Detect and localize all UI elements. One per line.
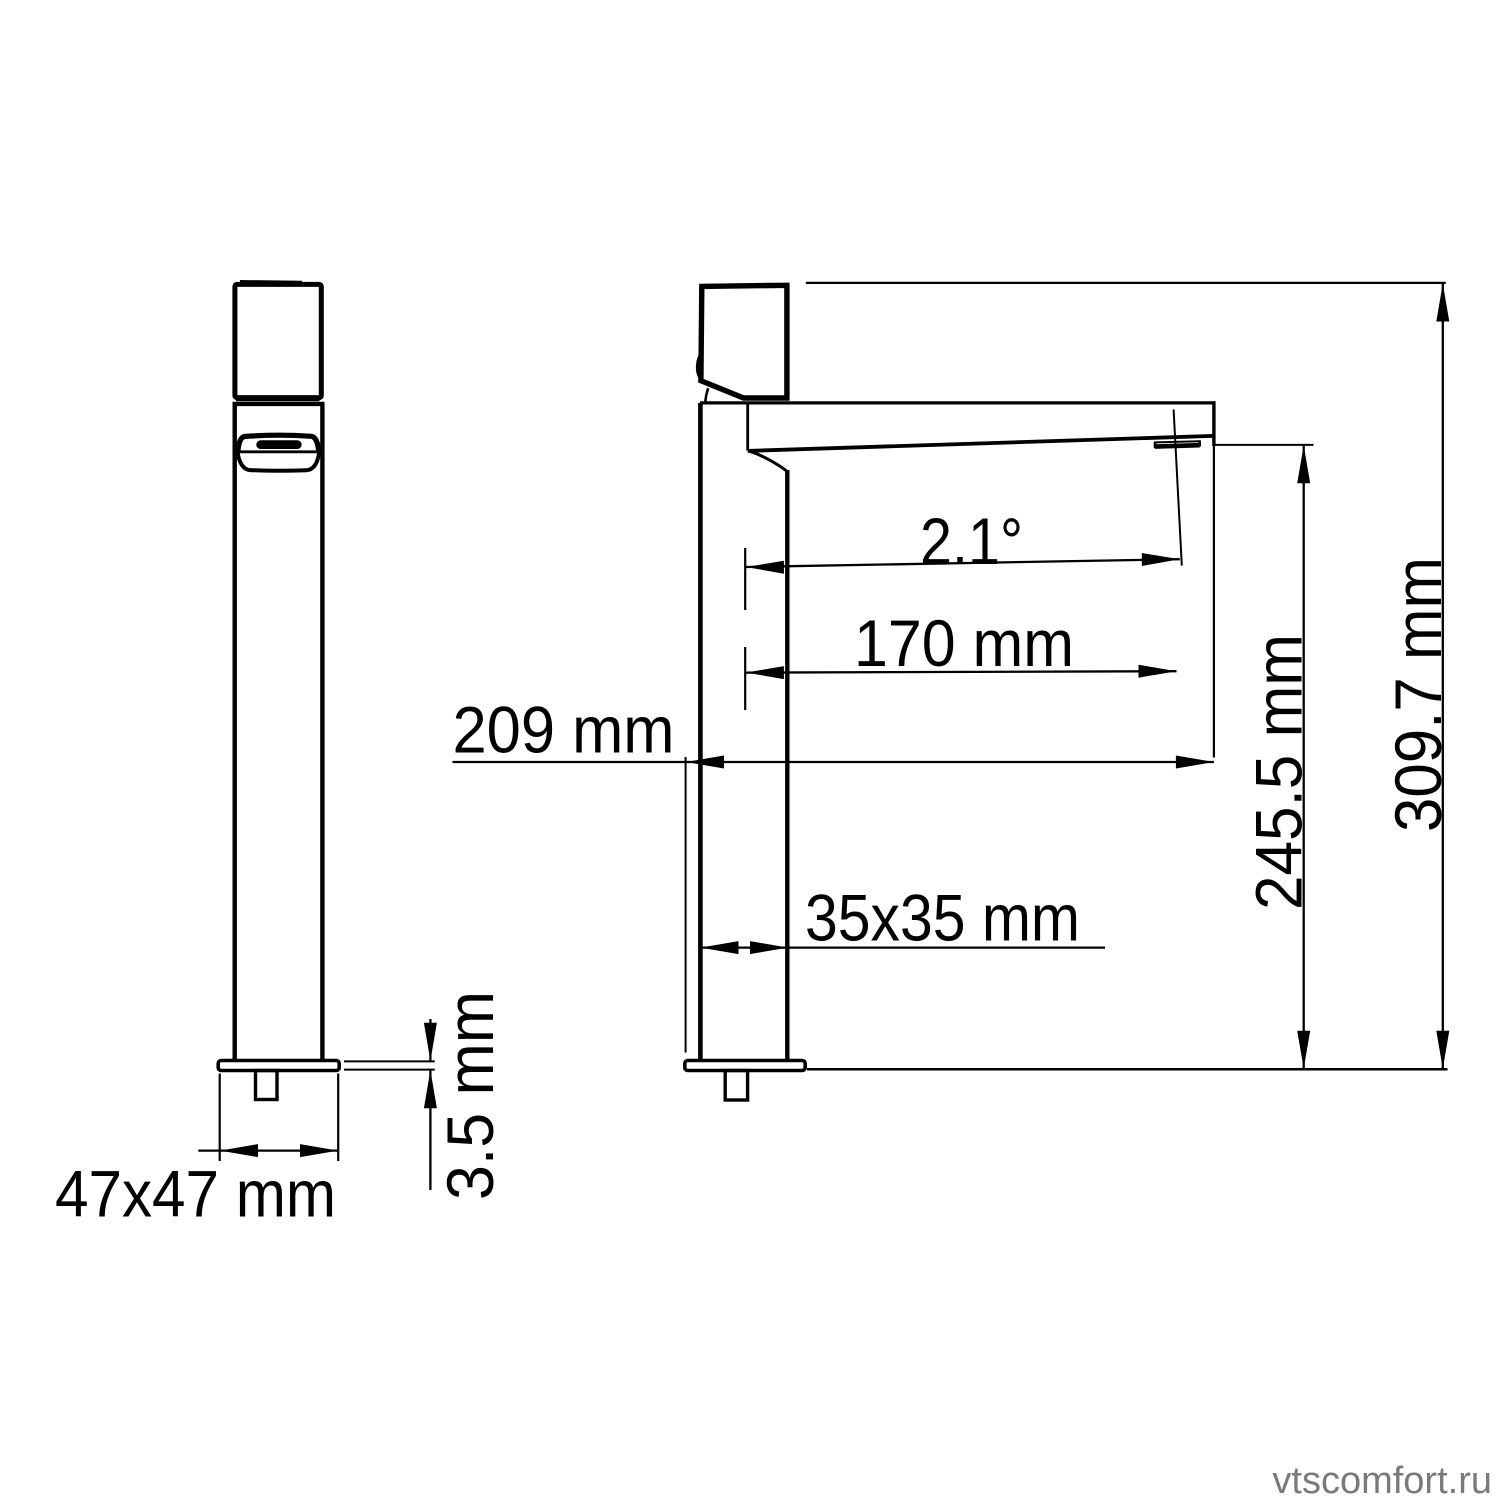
svg-text:170 mm: 170 mm	[854, 606, 1074, 680]
svg-text:47x47 mm: 47x47 mm	[55, 1157, 336, 1231]
svg-text:35x35 mm: 35x35 mm	[805, 881, 1080, 955]
svg-text:3.5 mm: 3.5 mm	[433, 991, 507, 1200]
svg-text:2.1°: 2.1°	[920, 504, 1023, 578]
svg-text:vtscomfort.ru: vtscomfort.ru	[1272, 1460, 1492, 1500]
svg-text:209 mm: 209 mm	[453, 693, 675, 767]
svg-text:309.7 mm: 309.7 mm	[1381, 557, 1455, 832]
svg-text:245.5 mm: 245.5 mm	[1242, 634, 1316, 910]
